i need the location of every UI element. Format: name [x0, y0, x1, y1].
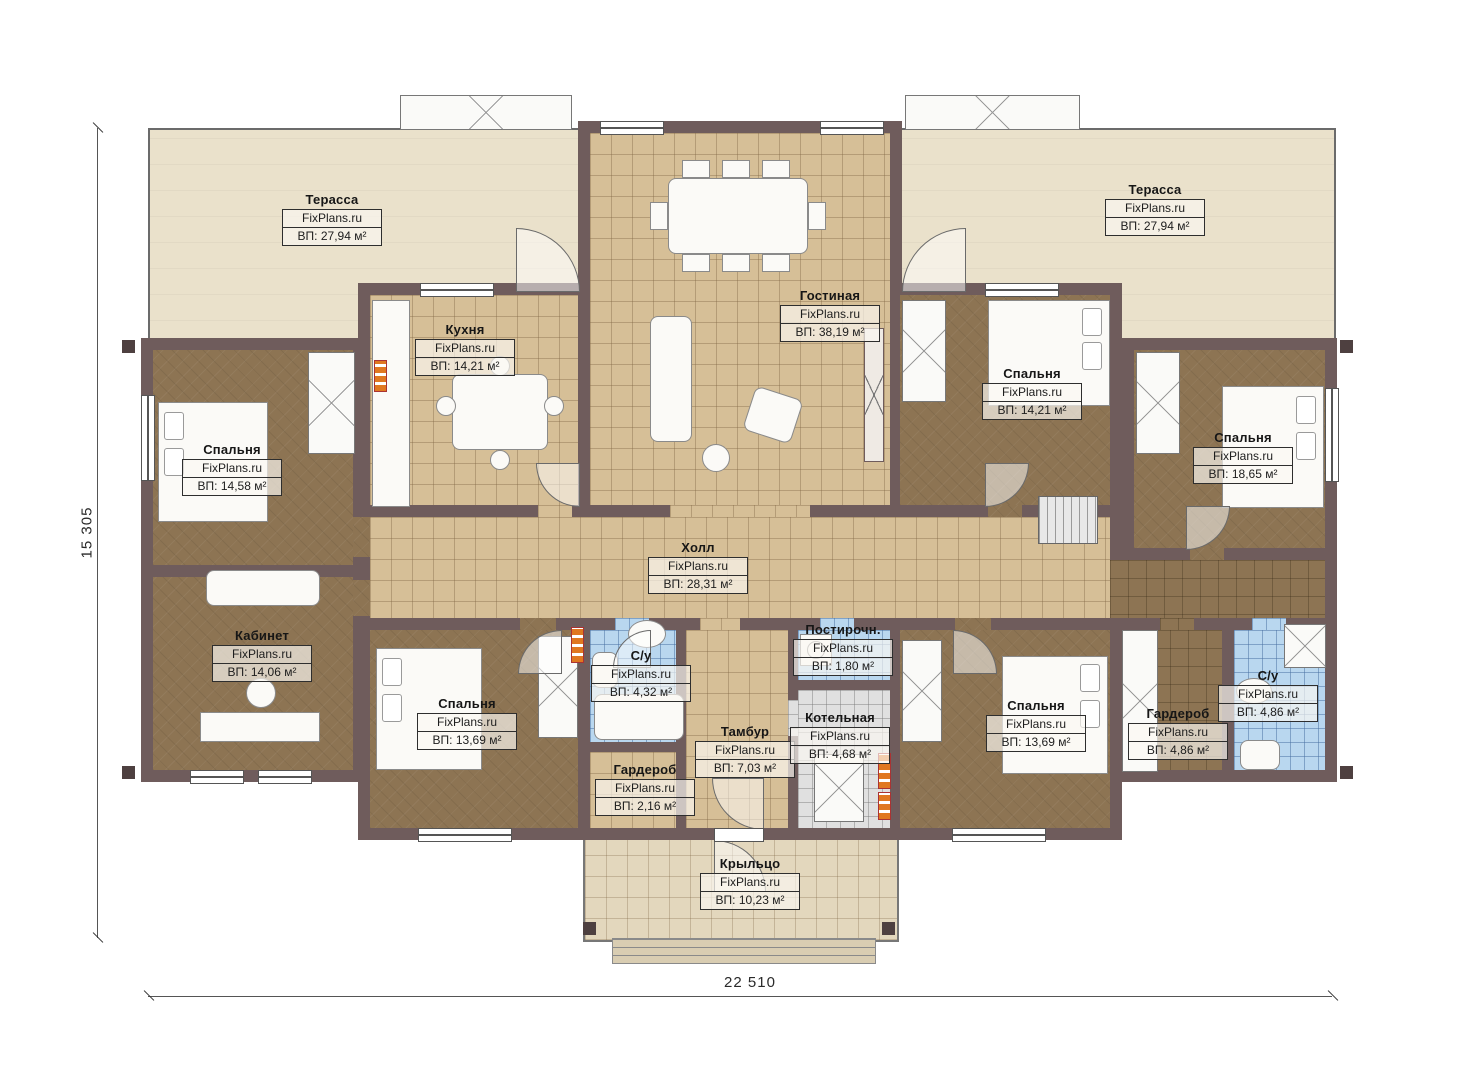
chair [682, 160, 710, 178]
pillow [1080, 664, 1100, 692]
pillow [164, 412, 184, 440]
dimension-tick [93, 932, 104, 943]
coffee-table [702, 444, 730, 472]
window [258, 770, 312, 784]
pillow [382, 694, 402, 722]
chair [682, 254, 710, 272]
dimension-line-horizontal [148, 996, 1332, 997]
boiler-unit [814, 754, 864, 822]
window-awning-right [905, 95, 1080, 130]
boiler-door-gap [788, 700, 798, 736]
chair [762, 254, 790, 272]
window [952, 828, 1046, 842]
pillow [382, 658, 402, 686]
wardrobe-cabinet [902, 640, 942, 742]
window [190, 770, 244, 784]
closet-shelves [1122, 630, 1158, 772]
stool [436, 396, 456, 416]
pillow [1296, 396, 1316, 424]
pillow [1082, 308, 1102, 336]
pillow [164, 448, 184, 476]
column-post [1340, 766, 1353, 779]
corridor-right-floor [1110, 560, 1325, 618]
column-post [882, 922, 895, 935]
dining-table [668, 178, 808, 254]
chair [808, 202, 826, 230]
wardrobe-cabinet [1136, 352, 1180, 454]
stool [544, 396, 564, 416]
window [1325, 388, 1339, 482]
stool [490, 356, 510, 376]
window [141, 395, 155, 481]
hall-floor [370, 517, 1110, 618]
radiator-icon [878, 792, 891, 820]
column-post [583, 922, 596, 935]
chair [650, 202, 668, 230]
window [418, 828, 512, 842]
wardrobe-cabinet [902, 300, 946, 402]
washing-machine-drum [807, 641, 825, 659]
desk-chair [246, 678, 276, 708]
wardrobe-bottom-floor [590, 752, 676, 828]
shower [1284, 624, 1326, 668]
attic-ladder [1038, 496, 1098, 544]
bathroom-right-door-gap [1252, 618, 1286, 630]
desk [200, 712, 320, 742]
office-sofa [206, 570, 320, 606]
chair [762, 160, 790, 178]
column-post [122, 766, 135, 779]
tv-cabinet [864, 328, 884, 462]
bedroom-far-right-door-gap [1190, 548, 1224, 560]
chair [722, 254, 750, 272]
bedroom-left-door-gap [353, 517, 370, 557]
bedroom-top-right-door-gap [988, 505, 1022, 517]
floor-plan: Терасса FixPlans.ruВП: 27,94 м² Терасса … [0, 0, 1474, 1080]
kitchen-counter [372, 300, 410, 507]
laundry-door-gap [820, 618, 854, 630]
pillow [1082, 342, 1102, 370]
stool [490, 450, 510, 470]
bedroom-bottom-right-door-gap [955, 618, 991, 630]
column-post [122, 340, 135, 353]
radiator-icon [571, 627, 584, 663]
bathtub [594, 694, 684, 740]
window [985, 283, 1059, 297]
window-awning-left [400, 95, 572, 130]
dimension-line-vertical [97, 128, 98, 938]
sofa [650, 316, 692, 442]
sink [1236, 678, 1272, 704]
window [820, 121, 884, 135]
living-hall-opening [670, 505, 810, 517]
porch-steps [612, 938, 876, 964]
dimension-width-label: 22 510 [705, 974, 795, 991]
chair [722, 160, 750, 178]
kitchen-door-gap [538, 505, 572, 517]
radiator-icon [878, 753, 891, 789]
vestibule-door-gap [700, 618, 740, 630]
toilet [1240, 740, 1280, 770]
window [420, 283, 494, 297]
dimension-tick [93, 122, 104, 133]
stove-icon [374, 360, 387, 392]
window [600, 121, 664, 135]
column-post [1340, 340, 1353, 353]
pillow [1296, 432, 1316, 460]
kitchen-island [452, 374, 548, 450]
dimension-height-label: 15 305 [79, 498, 96, 568]
wardrobe-right-door-gap [1160, 618, 1194, 630]
wardrobe-cabinet [308, 352, 355, 454]
bedroom-bottom-left-door-gap [520, 618, 556, 630]
office-door-gap [353, 580, 370, 616]
pillow [1080, 700, 1100, 728]
front-door-opening [714, 828, 764, 842]
